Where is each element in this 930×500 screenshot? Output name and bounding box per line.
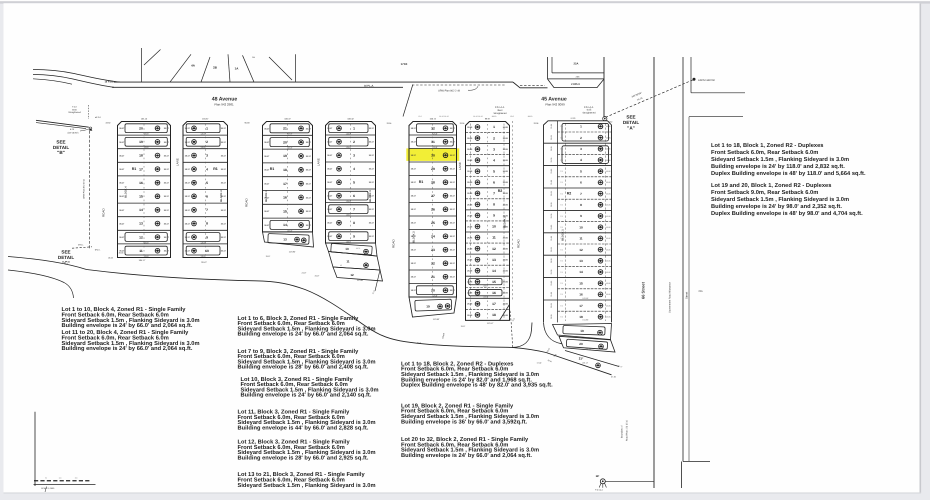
svg-text:35.17: 35.17 — [450, 168, 456, 171]
svg-text:35.17: 35.17 — [450, 235, 456, 238]
svg-text:251.2': 251.2' — [201, 261, 207, 264]
svg-text:206: 206 — [698, 290, 703, 293]
svg-text:25.05: 25.05 — [467, 236, 473, 239]
svg-text:2: 2 — [353, 140, 355, 144]
svg-text:2 DPLX: 2 DPLX — [571, 83, 580, 86]
svg-text:F.D.I: F.D.I — [72, 106, 77, 109]
svg-text:25.05: 25.05 — [503, 137, 509, 140]
svg-text:ROAD: ROAD — [517, 238, 521, 248]
svg-text:DETAIL: DETAIL — [58, 255, 74, 260]
svg-text:25.05: 25.05 — [467, 203, 473, 206]
svg-text:35.17: 35.17 — [450, 222, 456, 225]
svg-text:117.86': 117.86' — [433, 318, 440, 321]
svg-text:35.17: 35.17 — [164, 141, 170, 144]
svg-text:38.10 38.10: 38.10 38.10 — [439, 115, 449, 118]
svg-text:2: 2 — [580, 136, 582, 140]
svg-text:25.05: 25.05 — [503, 270, 509, 273]
svg-text:35.17: 35.17 — [164, 222, 170, 225]
svg-text:14: 14 — [579, 270, 583, 274]
svg-text:35.17: 35.17 — [369, 222, 375, 225]
svg-text:22: 22 — [431, 261, 435, 265]
svg-text:35.17: 35.17 — [221, 141, 227, 144]
svg-text:25.05: 25.05 — [550, 303, 553, 308]
svg-text:29: 29 — [431, 167, 435, 171]
svg-text:35.17: 35.17 — [221, 236, 227, 239]
svg-text:DETAIL: DETAIL — [623, 120, 639, 125]
svg-text:15: 15 — [492, 280, 496, 284]
svg-text:18: 18 — [579, 315, 583, 319]
svg-text:125.8': 125.8' — [287, 147, 293, 150]
svg-text:Street: Street — [686, 292, 689, 299]
svg-text:LANE: LANE — [317, 158, 321, 166]
svg-text:35.17: 35.17 — [411, 127, 417, 130]
svg-text:35.17: 35.17 — [369, 181, 375, 184]
svg-text:25.05: 25.05 — [467, 303, 473, 306]
svg-text:11: 11 — [579, 237, 583, 241]
svg-text:125.8': 125.8' — [144, 255, 150, 258]
svg-text:Sideyard Setback 1.5m , Flanki: Sideyard Setback 1.5m , Flanking Sideyar… — [711, 196, 849, 203]
svg-text:3: 3 — [580, 147, 582, 151]
svg-text:19: 19 — [283, 154, 287, 158]
svg-text:25.05: 25.05 — [503, 170, 509, 173]
svg-text:7.5: 7.5 — [560, 192, 563, 195]
svg-text:117.88': 117.88' — [357, 279, 364, 282]
svg-text:1: 1 — [580, 125, 582, 129]
svg-text:25.05: 25.05 — [606, 215, 611, 218]
svg-text:57.23: 57.23 — [571, 117, 576, 120]
svg-text:R1: R1 — [213, 167, 218, 171]
svg-text:99.97: 99.97 — [485, 118, 491, 121]
svg-text:25.05: 25.05 — [467, 126, 473, 129]
svg-text:35.17: 35.17 — [164, 195, 170, 198]
svg-text:13: 13 — [579, 259, 583, 263]
svg-text:7.5: 7.5 — [560, 293, 563, 296]
svg-text:35.17: 35.17 — [450, 195, 456, 198]
svg-text:18.74: 18.74 — [356, 247, 361, 250]
svg-text:25.0: 25.0 — [418, 115, 422, 118]
svg-text:25.05: 25.05 — [503, 292, 509, 295]
svg-text:14: 14 — [492, 269, 496, 273]
svg-text:35.17: 35.17 — [185, 209, 191, 212]
svg-text:BLOCK 4: BLOCK 4 — [125, 186, 128, 198]
svg-text:17XX: 17XX — [401, 62, 408, 66]
svg-text:125.8': 125.8' — [287, 133, 293, 136]
svg-text:35.17: 35.17 — [369, 141, 375, 144]
svg-text:6: 6 — [353, 194, 355, 198]
svg-text:154.86': 154.86' — [582, 319, 589, 322]
svg-text:35.17: 35.17 — [185, 127, 191, 130]
svg-text:R1: R1 — [270, 167, 275, 171]
svg-text:35.17: 35.17 — [164, 182, 170, 185]
svg-text:25.05: 25.05 — [606, 282, 611, 285]
svg-text:25.05: 25.05 — [503, 259, 509, 262]
svg-text:14: 14 — [283, 223, 287, 227]
svg-text:SEE: SEE — [56, 139, 65, 144]
svg-text:25.05: 25.05 — [550, 258, 553, 263]
svg-text:R1: R1 — [132, 167, 137, 171]
svg-text:35.17: 35.17 — [450, 276, 456, 279]
svg-text:10: 10 — [492, 225, 496, 229]
svg-text:BP: BP — [596, 475, 600, 478]
svg-text:25.05: 25.05 — [550, 270, 553, 275]
svg-text:F.D.I.a.a: F.D.I.a.a — [595, 489, 603, 492]
svg-text:35.17: 35.17 — [306, 224, 312, 227]
svg-text:4: 4 — [353, 167, 355, 171]
svg-text:100.72: 100.72 — [430, 118, 437, 121]
svg-text:♦FD.I.: ♦FD.I. — [95, 248, 101, 251]
svg-text:25.05: 25.05 — [606, 271, 611, 274]
svg-text:21.0': 21.0' — [417, 341, 422, 344]
svg-text:Sideyard Setback 1.5m , Flanki: Sideyard Setback 1.5m , Flanking Sideyar… — [711, 156, 849, 163]
svg-text:25.05: 25.05 — [606, 181, 611, 184]
svg-text:35.17: 35.17 — [221, 154, 227, 157]
svg-text:16: 16 — [579, 293, 583, 297]
svg-text:28: 28 — [431, 180, 435, 184]
svg-text:19: 19 — [139, 140, 143, 144]
svg-text:25.05: 25.05 — [550, 225, 553, 230]
svg-text:35.17: 35.17 — [221, 250, 227, 253]
svg-text:17: 17 — [283, 182, 287, 186]
svg-text:Duplex Building envelope is 48: Duplex Building envelope is 48' by 118.0… — [711, 170, 866, 177]
svg-text:35.17: 35.17 — [306, 210, 312, 213]
svg-text:35.17: 35.17 — [185, 154, 191, 157]
svg-text:7.5: 7.5 — [560, 181, 563, 184]
svg-text:16.03: 16.03 — [108, 257, 113, 260]
svg-text:10: 10 — [579, 225, 583, 229]
svg-text:15: 15 — [283, 209, 287, 213]
svg-text:17: 17 — [579, 304, 583, 308]
svg-text:Road Plan 172 2710: Road Plan 172 2710 — [626, 419, 629, 441]
svg-text:35.17: 35.17 — [119, 141, 125, 144]
svg-text:(33°16'25"): (33°16'25") — [68, 132, 79, 135]
svg-text:7.5: 7.5 — [560, 170, 563, 173]
svg-text:BLOCK 4: BLOCK 4 — [220, 190, 223, 202]
svg-text:38.10 38.10: 38.10 38.10 — [473, 115, 483, 118]
svg-text:35.17: 35.17 — [185, 222, 191, 225]
svg-text:7.5: 7.5 — [560, 215, 563, 218]
svg-text:35.17: 35.17 — [327, 235, 333, 238]
svg-text:35.17: 35.17 — [450, 208, 456, 211]
svg-text:104.15: 104.15 — [141, 118, 148, 121]
svg-text:16: 16 — [139, 181, 143, 185]
svg-text:ROAD: ROAD — [245, 197, 249, 207]
svg-text:20: 20 — [283, 140, 287, 144]
svg-text:35.17: 35.17 — [450, 289, 456, 292]
svg-text:35.17: 35.17 — [264, 127, 270, 130]
svg-text:25.05: 25.05 — [503, 281, 509, 284]
svg-text:F.D.I.A.A.: F.D.I.A.A. — [584, 106, 594, 109]
svg-text:25.05: 25.05 — [606, 248, 611, 251]
svg-text:35.17: 35.17 — [450, 154, 456, 157]
svg-text:104.67: 104.67 — [202, 118, 209, 121]
svg-text:25.05: 25.05 — [467, 192, 473, 195]
svg-text:25.05: 25.05 — [467, 170, 473, 173]
svg-text:1: 1 — [493, 125, 495, 129]
svg-text:7.5: 7.5 — [560, 271, 563, 274]
svg-text:21.0°: 21.0° — [461, 325, 466, 328]
svg-text:5: 5 — [580, 169, 582, 173]
svg-text:38.10: 38.10 — [492, 115, 497, 118]
svg-text:25.05: 25.05 — [550, 146, 553, 151]
svg-text:7.5: 7.5 — [560, 248, 563, 251]
svg-text:9: 9 — [206, 235, 208, 239]
svg-text:6: 6 — [206, 195, 208, 199]
svg-text:25.05: 25.05 — [503, 303, 509, 306]
svg-text:17: 17 — [139, 167, 143, 171]
svg-text:♦FD.I.: ♦FD.I. — [78, 243, 84, 246]
svg-text:35.17: 35.17 — [411, 181, 417, 184]
svg-text:35.17: 35.17 — [327, 181, 333, 184]
svg-text:35.17: 35.17 — [306, 196, 312, 199]
svg-text:8: 8 — [353, 221, 355, 225]
svg-text:11: 11 — [492, 236, 496, 240]
svg-text:Building envelope is 44' by 66: Building envelope is 44' by 66.0' and 2,… — [238, 425, 369, 432]
svg-text:3: 3 — [493, 147, 495, 151]
svg-text:23.06: 23.06 — [534, 122, 539, 125]
svg-text:35.17: 35.17 — [164, 209, 170, 212]
svg-text:117.57': 117.57' — [487, 322, 494, 325]
svg-text:10: 10 — [205, 249, 209, 253]
svg-text:F.D.I.A.A.: F.D.I.A.A. — [495, 106, 505, 109]
svg-text:0.05: 0.05 — [587, 109, 592, 112]
svg-text:25: 25 — [431, 221, 435, 225]
svg-text:35.17: 35.17 — [411, 208, 417, 211]
svg-text:2: 2 — [493, 136, 495, 140]
svg-text:27.25: 27.25 — [611, 376, 616, 379]
svg-text:35.17: 35.17 — [306, 141, 312, 144]
svg-text:23.95: 23.95 — [387, 122, 392, 125]
svg-text:31: 31 — [431, 140, 435, 144]
svg-text:27: 27 — [431, 194, 435, 198]
svg-text:35.17: 35.17 — [450, 181, 456, 184]
svg-text:25.05: 25.05 — [550, 247, 553, 252]
svg-text:35.17: 35.17 — [369, 235, 375, 238]
svg-text:45: 45 — [340, 264, 342, 267]
svg-text:R2: R2 — [567, 192, 572, 196]
svg-text:URW Plan 872 0711: URW Plan 872 0711 — [83, 178, 86, 199]
svg-text:35.17: 35.17 — [185, 236, 191, 239]
svg-text:35.17: 35.17 — [411, 141, 417, 144]
svg-text:20: 20 — [139, 127, 143, 131]
svg-text:35.17: 35.17 — [450, 127, 456, 130]
svg-text:30: 30 — [431, 153, 435, 157]
svg-text:35.17: 35.17 — [450, 262, 456, 265]
svg-text:21.0°: 21.0° — [302, 272, 307, 275]
svg-text:25.05: 25.05 — [606, 316, 611, 319]
svg-text:7: 7 — [206, 208, 208, 212]
svg-text:35.17: 35.17 — [164, 168, 170, 171]
svg-text:Building envelope is 24' by 98: Building envelope is 24' by 98.0' and 2,… — [711, 203, 842, 210]
svg-text:3: 3 — [353, 153, 355, 157]
svg-text:21.0°: 21.0° — [266, 255, 271, 258]
svg-text:Building envelope is 36' by 66: Building envelope is 36' by 66.0' and 3,… — [401, 418, 528, 425]
svg-text:16 P.L.A.: 16 P.L.A. — [364, 84, 374, 87]
svg-text:126.33': 126.33' — [585, 348, 592, 351]
svg-text:Duplex Building envelope is 48: Duplex Building envelope is 48' by 98.0'… — [711, 210, 863, 217]
svg-text:ROAD: ROAD — [102, 207, 106, 217]
svg-text:25.05: 25.05 — [606, 293, 611, 296]
svg-text:Lot 1 to 18, Block 1, Zoned R2: Lot 1 to 18, Block 1, Zoned R2 - Duplexe… — [711, 142, 823, 149]
svg-text:11: 11 — [139, 249, 143, 253]
svg-text:25.05: 25.05 — [606, 204, 611, 207]
svg-text:35.17: 35.17 — [306, 183, 312, 186]
svg-text:5: 5 — [206, 181, 208, 185]
svg-text:35.17: 35.17 — [411, 222, 417, 225]
svg-text:SCALE 1:2500: SCALE 1:2500 — [41, 487, 55, 490]
svg-text:25.05: 25.05 — [503, 126, 509, 129]
svg-text:Government Road Allowance: Government Road Allowance — [669, 281, 672, 313]
svg-text:25.05: 25.05 — [467, 292, 473, 295]
svg-text:Building envelope is 24' by 66: Building envelope is 24' by 66.0' and 2,… — [62, 322, 193, 329]
svg-text:16: 16 — [283, 196, 287, 200]
svg-text:15: 15 — [579, 281, 583, 285]
svg-text:35.17: 35.17 — [119, 222, 125, 225]
svg-text:9: 9 — [353, 234, 355, 238]
svg-text:10: 10 — [345, 247, 349, 251]
svg-text:35.17: 35.17 — [221, 209, 227, 212]
svg-text:25.05: 25.05 — [550, 236, 553, 241]
svg-text:Straightened: Straightened — [493, 112, 507, 115]
svg-text:35.17: 35.17 — [327, 154, 333, 157]
svg-text:35.17: 35.17 — [119, 250, 125, 253]
svg-text:Building envelope is 28' by 66: Building envelope is 28' by 66.0' and 2,… — [238, 364, 369, 371]
svg-text:35.17: 35.17 — [327, 222, 333, 225]
svg-text:25.05: 25.05 — [550, 124, 553, 129]
svg-text:35.17: 35.17 — [327, 208, 333, 211]
svg-text:35.17: 35.17 — [264, 183, 270, 186]
svg-text:25.05: 25.05 — [467, 314, 473, 317]
svg-text:7.5: 7.5 — [560, 260, 563, 263]
svg-text:25.05: 25.05 — [550, 292, 553, 297]
svg-text:35.17: 35.17 — [306, 155, 312, 158]
svg-text:Building envelope is 24' by 11: Building envelope is 24' by 118.0' and 2… — [711, 163, 845, 170]
svg-text:25.0: 25.0 — [510, 115, 514, 118]
svg-text:4: 4 — [493, 158, 495, 162]
svg-text:35.17: 35.17 — [450, 249, 456, 252]
svg-text:7.5: 7.5 — [560, 226, 563, 229]
svg-text:16 P.U.L.: 16 P.U.L. — [105, 81, 115, 84]
svg-text:25.05: 25.05 — [550, 314, 553, 319]
svg-text:ROAD: ROAD — [392, 238, 396, 248]
svg-text:6: 6 — [493, 180, 495, 184]
svg-text:25.05: 25.05 — [467, 225, 473, 228]
svg-text:31.0°: 31.0° — [315, 274, 320, 277]
svg-text:3: 3 — [206, 154, 208, 158]
svg-text:7.5: 7.5 — [560, 282, 563, 285]
svg-text:35.17: 35.17 — [411, 276, 417, 279]
svg-text:35.17: 35.17 — [119, 209, 125, 212]
svg-text:125.8': 125.8' — [432, 132, 438, 135]
svg-text:8: 8 — [493, 203, 495, 207]
svg-text:35.17: 35.17 — [221, 127, 227, 130]
svg-text:25.05: 25.05 — [550, 158, 553, 163]
svg-text:35.17: 35.17 — [327, 195, 333, 198]
svg-text:35.17: 35.17 — [369, 154, 375, 157]
svg-text:R1: R1 — [419, 180, 424, 184]
svg-text:35.17: 35.17 — [306, 169, 312, 172]
svg-text:8: 8 — [580, 203, 582, 207]
svg-text:DETAIL: DETAIL — [53, 145, 69, 150]
svg-text:18: 18 — [139, 154, 143, 158]
svg-text:21: 21 — [431, 275, 435, 279]
svg-text:117.86': 117.86' — [289, 251, 296, 254]
svg-text:5: 5 — [493, 169, 495, 173]
svg-text:12: 12 — [139, 235, 143, 239]
svg-text:R2: R2 — [498, 189, 503, 193]
svg-text:35.17: 35.17 — [264, 210, 270, 213]
svg-text:14: 14 — [139, 208, 143, 212]
svg-text:21: 21 — [283, 127, 287, 131]
svg-text:35.17: 35.17 — [164, 154, 170, 157]
svg-text:35.17: 35.17 — [411, 168, 417, 171]
svg-text:23: 23 — [431, 248, 435, 252]
svg-text:7.5: 7.5 — [560, 316, 563, 319]
svg-text:95.88: 95.88 — [244, 122, 250, 125]
svg-text:LANE: LANE — [458, 162, 462, 170]
svg-text:38.10: 38.10 — [528, 115, 533, 118]
svg-text:SEE: SEE — [61, 250, 70, 255]
svg-text:Straightened: Straightened — [582, 111, 596, 114]
svg-text:Building envelope is 24' by 66: Building envelope is 24' by 66.0' and 2,… — [62, 345, 193, 352]
svg-text:Plan 942 0099: Plan 942 0099 — [545, 103, 565, 107]
svg-text:19: 19 — [426, 304, 430, 308]
svg-text:25.05: 25.05 — [467, 137, 473, 140]
svg-text:25.05: 25.05 — [503, 247, 509, 250]
svg-text:35.17: 35.17 — [119, 154, 125, 157]
svg-text:5: 5 — [353, 180, 355, 184]
svg-text:35.17: 35.17 — [185, 250, 191, 253]
svg-text:18: 18 — [283, 168, 287, 172]
svg-text:35.17: 35.17 — [185, 182, 191, 185]
svg-text:35.17: 35.17 — [119, 182, 125, 185]
svg-text:35.17: 35.17 — [164, 250, 170, 253]
svg-text:35.17: 35.17 — [411, 154, 417, 157]
svg-text:♦F.D.I: ♦F.D.I — [95, 116, 101, 119]
svg-text:7.5: 7.5 — [560, 304, 563, 307]
svg-text:Lot 19 and 20, Block 1, Zoned: Lot 19 and 20, Block 1, Zoned R2 - Duple… — [711, 182, 831, 189]
svg-text:Building envelope is 24' by 66: Building envelope is 24' by 66.0' and 2,… — [241, 392, 372, 399]
svg-text:125.8': 125.8' — [144, 133, 150, 136]
svg-text:19: 19 — [580, 329, 584, 333]
svg-text:35.17: 35.17 — [369, 168, 375, 171]
svg-text:35.17: 35.17 — [264, 141, 270, 144]
svg-text:35.17: 35.17 — [327, 168, 333, 171]
svg-text:20: 20 — [579, 342, 583, 346]
svg-text:1: 1 — [206, 127, 208, 131]
svg-text:25.05: 25.05 — [550, 191, 553, 196]
svg-text:12: 12 — [350, 273, 354, 277]
svg-text:Building envelope is 24' by 66: Building envelope is 24' by 66.0' and 2,… — [401, 452, 532, 459]
svg-text:12: 12 — [492, 247, 496, 251]
svg-text:35.17: 35.17 — [221, 168, 227, 171]
svg-text:25.05: 25.05 — [467, 259, 473, 262]
svg-text:35.17: 35.17 — [369, 127, 375, 130]
svg-text:125.8': 125.8' — [432, 146, 438, 149]
svg-text:"A": "A" — [627, 125, 635, 130]
svg-text:25.05: 25.05 — [467, 159, 473, 162]
svg-text:25.05: 25.05 — [467, 148, 473, 151]
svg-text:SEE: SEE — [626, 115, 635, 120]
svg-text:URW Plan 862 2 49: URW Plan 862 2 49 — [438, 90, 461, 93]
svg-text:Building envelope is 28' by 66: Building envelope is 28' by 66.0' and 2,… — [238, 455, 369, 462]
svg-text:17.42: 17.42 — [537, 362, 542, 365]
svg-text:15: 15 — [139, 195, 143, 199]
svg-text:35.17: 35.17 — [119, 168, 125, 171]
svg-text:100.32: 100.32 — [347, 118, 354, 121]
svg-text:"B": "B" — [57, 150, 65, 155]
svg-text:BLOCK 1: BLOCK 1 — [562, 229, 565, 241]
svg-text:4: 4 — [206, 167, 208, 171]
